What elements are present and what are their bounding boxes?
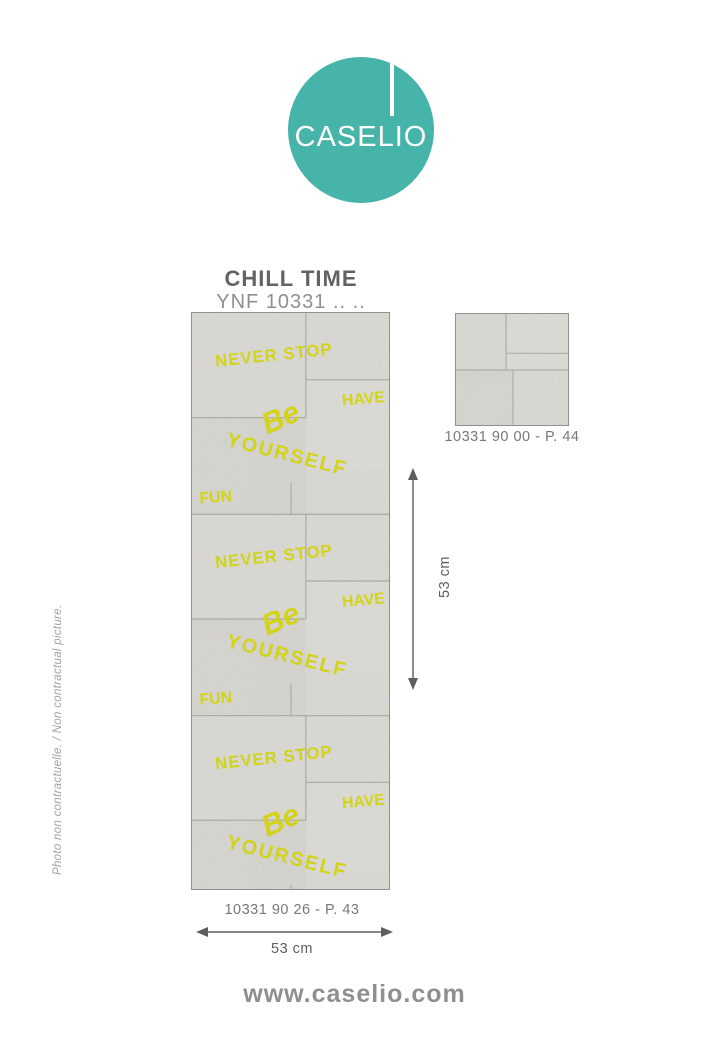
wallpaper-strip-art: NEVER STOP HAVE Be YOURSELF FUN NEVER ST… (192, 313, 389, 889)
wallpaper-plain-art (456, 314, 568, 425)
plain-sample-caption: 10331 90 00 - P. 44 (428, 429, 596, 445)
graffiti-fun: FUN (199, 689, 233, 708)
graffiti-fun: FUN (199, 488, 233, 507)
horizontal-dimension-arrow-icon (195, 923, 394, 941)
wallpaper-strip-image: NEVER STOP HAVE Be YOURSELF FUN NEVER ST… (191, 312, 390, 890)
catalog-page: CASELIO CHILL TIME YNF 10331 .. .. (0, 0, 709, 1063)
main-sample-caption: 10331 90 26 - P. 43 (191, 902, 393, 918)
caselio-logo: CASELIO (288, 57, 434, 203)
horizontal-dimension-label: 53 cm (191, 941, 393, 957)
collection-title: CHILL TIME (140, 266, 442, 292)
website-url: www.caselio.com (0, 980, 709, 1009)
wallpaper-plain-image (455, 313, 569, 426)
vertical-dimension-arrow-icon (404, 467, 422, 691)
collection-reference: YNF 10331 .. .. (140, 291, 442, 314)
logo-brand-text: CASELIO (288, 121, 434, 154)
logo-vertical-line-icon (390, 57, 394, 116)
disclaimer-text: Photo non contractuelle. / Non contractu… (52, 582, 70, 897)
vertical-dimension-label: 53 cm (437, 548, 453, 606)
